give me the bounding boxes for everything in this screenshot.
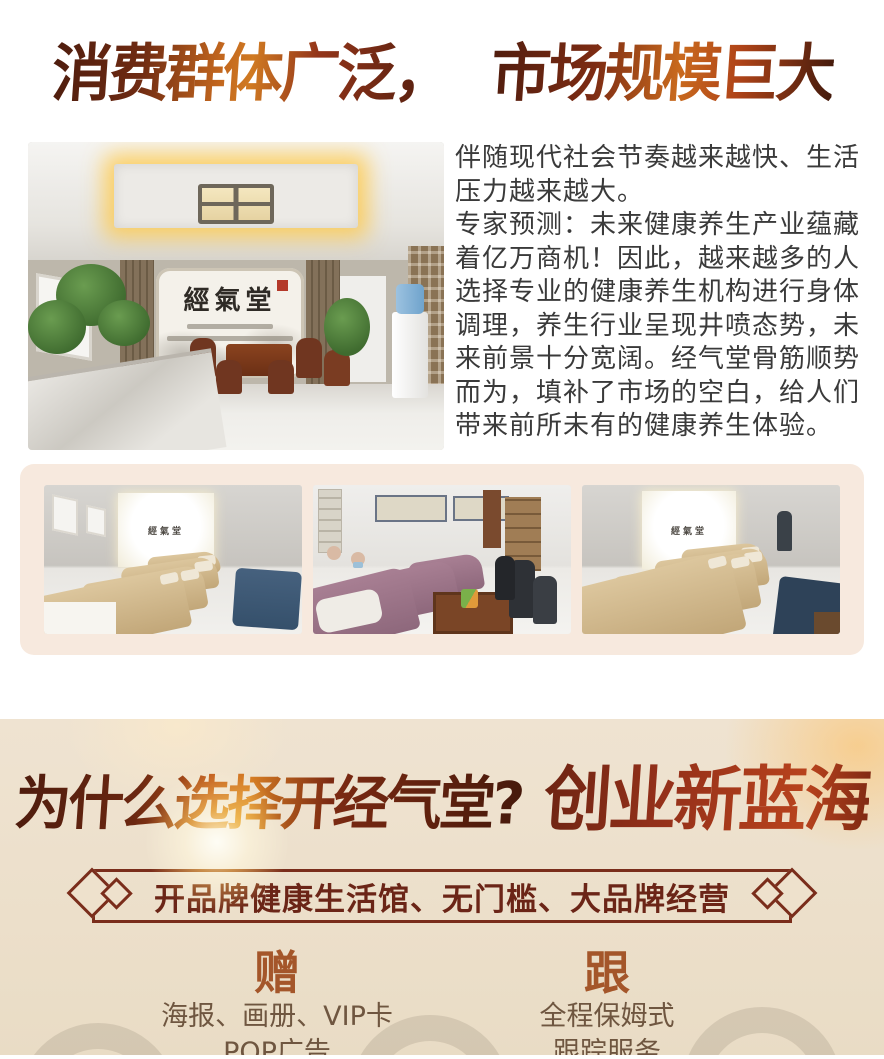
clinic-photo-beds-left: 經氣堂 [44,485,302,634]
water-dispenser [392,312,428,398]
small-wall-pictures [318,489,342,553]
person-head [327,546,341,560]
page-title: 消费群体广泛，市场规模巨大 [0,0,884,112]
benefit-follow: 跟 全程保姆式 跟踪服务 [442,947,772,1055]
person [777,511,792,551]
wood-chair [296,338,322,378]
why-title-part2: 创业新蓝海 [541,759,872,842]
intro-paragraph-2: 专家预测：未来健康养生产业蕴藏着亿万商机！因此，越来越多的人选择专业的健康养生机… [455,209,870,444]
panel-calligraphy-line [167,336,293,341]
door [483,490,501,548]
benefit-gift-line2: POP广告 [112,1035,442,1055]
white-counter [44,602,116,634]
why-title: 为什么选择开经气堂?创业新蓝海 [0,719,884,855]
showroom-photo: 經氣堂 [28,142,444,450]
person [495,556,515,600]
benefit-follow-keyword: 跟 [442,947,772,999]
clinic-photo-beds-right: 經氣堂 [582,485,840,634]
slogan-text: 开品牌健康生活馆、无门槛、大品牌经营 [154,874,730,919]
benefit-follow-line1: 全程保姆式 [442,999,772,1035]
brand-logo-text: 經氣堂 [148,524,184,537]
benefit-gift-keyword: 赠 [112,947,442,999]
intro-row: 經氣堂 伴随现代社会节奏越来越快、生活压力越来越大。 专家预测：未来健康养生产业… [28,142,870,450]
page-title-part1: 消费群体广泛， [49,34,454,113]
plant [98,300,150,346]
why-section: 为什么选择开经气堂?创业新蓝海 开品牌健康生活馆、无门槛、大品牌经营 赠 海报、… [0,719,884,1055]
side-window [86,505,106,537]
wall-frame [375,495,447,522]
clinic-photo-lounge [313,485,571,634]
side-window [52,494,78,536]
plant [324,298,370,356]
intro-paragraph-1: 伴随现代社会节奏越来越快、生活压力越来越大。 [455,142,870,209]
plant [28,300,86,354]
person [533,576,557,624]
wood-stool [814,612,840,634]
promo-page: 消费群体广泛，市场规模巨大 經氣堂 [0,0,884,1059]
benefit-follow-line2: 跟踪服务 [442,1035,772,1055]
panel-calligraphy-line [187,324,273,329]
benefit-columns: 赠 海报、画册、VIP卡 POP广告 跟 全程保姆式 跟踪服务 [0,947,884,1055]
intro-text: 伴随现代社会节奏越来越快、生活压力越来越大。 专家预测：未来健康养生产业蕴藏着亿… [455,142,870,450]
blue-bench [232,568,302,630]
benefit-gift-line1: 海报、画册、VIP卡 [112,999,442,1035]
brand-logo-text: 經氣堂 [671,524,707,537]
page-title-part2: 市场规模巨大 [488,34,836,113]
wood-chair [216,360,242,394]
benefit-gift: 赠 海报、画册、VIP卡 POP广告 [112,947,442,1055]
wood-chair [268,360,294,394]
face-mask [353,562,363,568]
photo-strip: 經氣堂 [20,464,864,655]
why-title-part1: 为什么选择开经气堂? [12,763,524,846]
green-bag [461,589,478,608]
ceiling-lamp [198,184,274,224]
red-seal [277,280,288,291]
slogan-banner: 开品牌健康生活馆、无门槛、大品牌经营 [92,869,792,923]
